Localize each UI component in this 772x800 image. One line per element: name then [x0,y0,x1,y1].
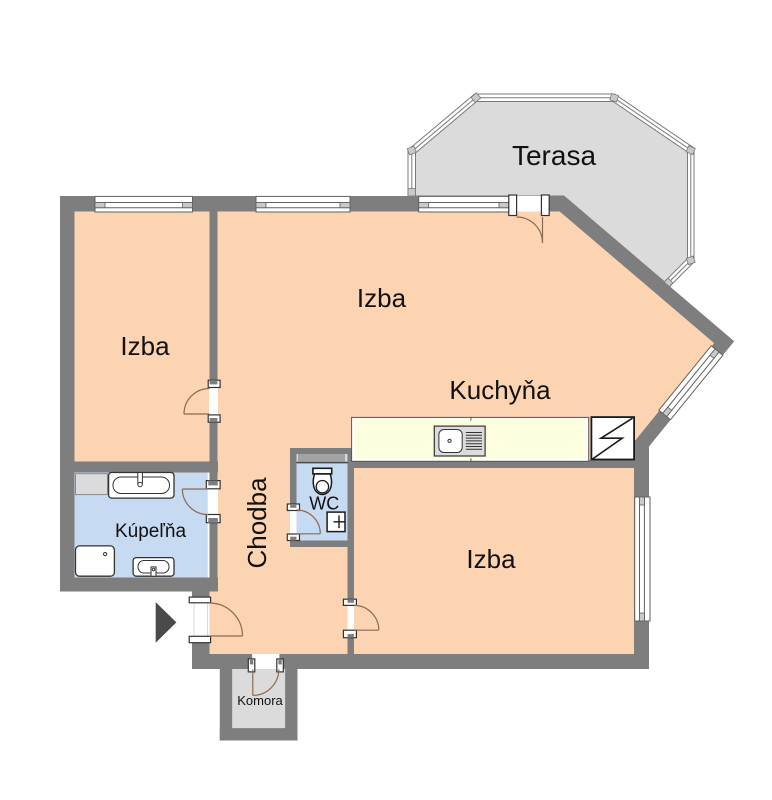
svg-text:Chodba: Chodba [242,477,272,569]
svg-text:Izba: Izba [120,331,170,361]
svg-text:Kuchyňa: Kuchyňa [449,375,551,405]
svg-text:WC: WC [309,494,339,514]
svg-text:Komora: Komora [237,693,283,708]
svg-text:Kúpeľňa: Kúpeľňa [115,521,186,542]
svg-text:Izba: Izba [357,283,407,313]
svg-text:Terasa: Terasa [512,140,596,171]
svg-text:Izba: Izba [466,544,516,574]
